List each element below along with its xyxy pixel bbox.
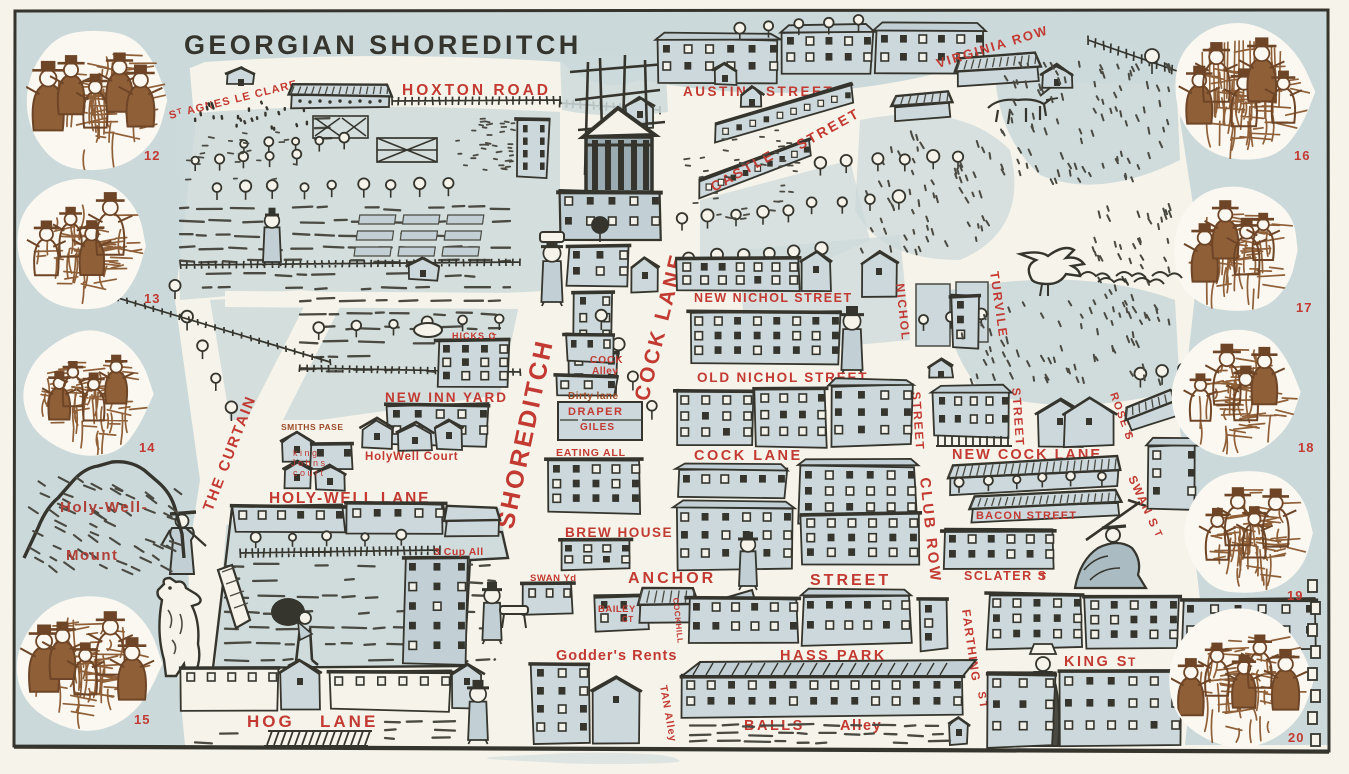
svg-text:19: 19 [1287, 588, 1303, 603]
svg-text:T: T [1040, 572, 1049, 583]
svg-text:BACON STREET: BACON STREET [976, 510, 1077, 522]
svg-text:SMITHS PASE: SMITHS PASE [281, 422, 344, 432]
svg-text:NEW NICHOL STREET: NEW NICHOL STREET [694, 291, 853, 305]
svg-text:16: 16 [1294, 148, 1310, 163]
svg-text:SCLATER S: SCLATER S [964, 569, 1047, 583]
svg-text:STREET: STREET [810, 572, 891, 589]
svg-text:17: 17 [1296, 300, 1312, 315]
svg-text:T: T [492, 334, 497, 341]
svg-text:HASS PARK: HASS PARK [780, 648, 887, 664]
svg-text:HOXTON ROAD: HOXTON ROAD [402, 82, 551, 99]
svg-text:court: court [293, 468, 326, 478]
svg-text:GEORGIAN SHOREDITCH: GEORGIAN SHOREDITCH [184, 30, 582, 60]
svg-text:20: 20 [1288, 730, 1304, 745]
svg-text:13: 13 [144, 291, 160, 306]
svg-text:COCK: COCK [590, 355, 623, 366]
svg-text:15: 15 [134, 712, 150, 727]
svg-text:ANCHOR: ANCHOR [628, 570, 716, 587]
svg-text:king: king [293, 448, 320, 458]
svg-text:3 Cup All: 3 Cup All [434, 546, 484, 558]
svg-text:HolyWell Court: HolyWell Court [365, 451, 458, 463]
svg-text:BREW HOUSE: BREW HOUSE [565, 525, 673, 540]
svg-text:EATING ALL: EATING ALL [556, 447, 626, 459]
svg-text:14: 14 [139, 440, 155, 455]
svg-text:CT: CT [622, 615, 634, 624]
svg-text:LANE: LANE [320, 712, 378, 731]
svg-text:Mount: Mount [66, 547, 118, 564]
svg-text:BAILEY: BAILEY [598, 604, 636, 615]
svg-text:12: 12 [144, 148, 160, 163]
svg-text:Godder's Rents: Godder's Rents [556, 648, 677, 664]
svg-text:HICKS C: HICKS C [452, 331, 496, 341]
svg-text:Holy-Well-: Holy-Well- [60, 499, 148, 516]
svg-text:Dirty lane: Dirty lane [568, 391, 619, 402]
svg-text:HOG: HOG [247, 712, 295, 731]
svg-text:18: 18 [1298, 440, 1314, 455]
svg-text:KING S: KING S [1064, 654, 1129, 670]
svg-text:NEW INN YARD: NEW INN YARD [385, 390, 508, 405]
svg-text:Johns: Johns [291, 458, 328, 468]
svg-text:GILES: GILES [580, 422, 615, 433]
svg-text:T: T [1128, 655, 1138, 669]
svg-text:DRAPER: DRAPER [568, 406, 623, 418]
svg-text:COCK LANE: COCK LANE [694, 448, 803, 464]
